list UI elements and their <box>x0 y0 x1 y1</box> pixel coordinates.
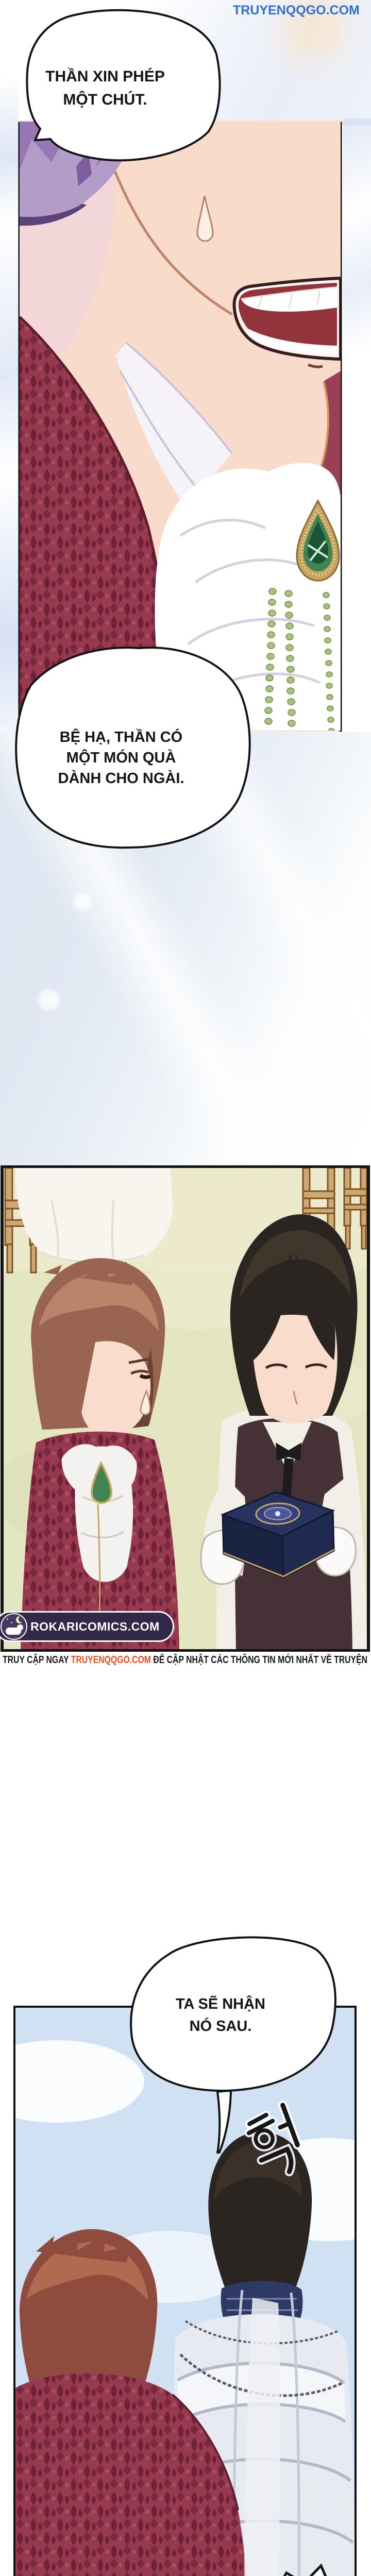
svg-text:NÓ SAU.: NÓ SAU. <box>190 2017 252 2035</box>
svg-text:MỘT CHÚT.: MỘT CHÚT. <box>63 91 147 108</box>
svg-text:TA SẼ NHẬN: TA SẼ NHẬN <box>176 1995 265 2012</box>
svg-text:DÀNH CHO NGÀI.: DÀNH CHO NGÀI. <box>58 769 184 787</box>
svg-text:THẦN XIN PHÉP: THẦN XIN PHÉP <box>45 67 165 85</box>
svg-text:MỘT MÓN QUÀ: MỘT MÓN QUÀ <box>66 749 176 766</box>
svg-text:BỆ HẠ, THẦN CÓ: BỆ HẠ, THẦN CÓ <box>60 728 182 745</box>
